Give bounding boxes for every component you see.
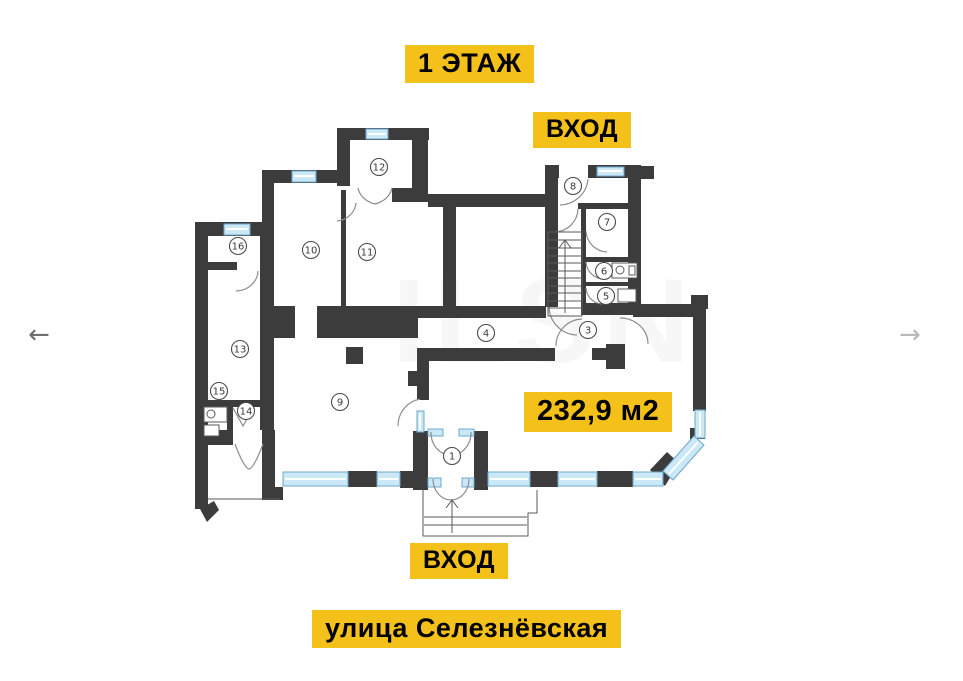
room-number-text-5: 5	[603, 292, 609, 303]
area-label: 232,9 м2	[524, 392, 672, 432]
watermark: ILSN	[392, 254, 697, 388]
svg-text:ILSN: ILSN	[392, 254, 697, 388]
floorplan-viewer: ILSN	[0, 0, 963, 681]
entrance-top-label: ВХОД	[533, 112, 631, 148]
room-number-text-4: 4	[483, 329, 489, 340]
floorplan-drawing: ILSN	[0, 0, 963, 681]
room-number-text-15: 15	[213, 387, 226, 398]
entrance-bottom-label: ВХОД	[410, 543, 508, 579]
room-number-text-6: 6	[601, 267, 607, 278]
room-number-text-13: 13	[234, 345, 247, 356]
next-image-arrow[interactable]: →	[899, 322, 921, 348]
room-number-text-11: 11	[361, 248, 374, 259]
floor-label: 1 ЭТАЖ	[405, 45, 534, 83]
street-label: улица Селезнёвская	[312, 610, 621, 648]
room-number-text-1: 1	[449, 452, 455, 463]
room-number-text-9: 9	[337, 398, 343, 409]
previous-image-arrow[interactable]: ←	[28, 322, 50, 348]
room-number-text-10: 10	[305, 246, 318, 257]
room-number-text-7: 7	[604, 218, 610, 229]
room-number-text-16: 16	[232, 242, 245, 253]
room-number-text-14: 14	[240, 407, 253, 418]
room-number-text-12: 12	[373, 163, 386, 174]
room-number-text-3: 3	[585, 326, 591, 337]
room-number-text-8: 8	[570, 182, 576, 193]
